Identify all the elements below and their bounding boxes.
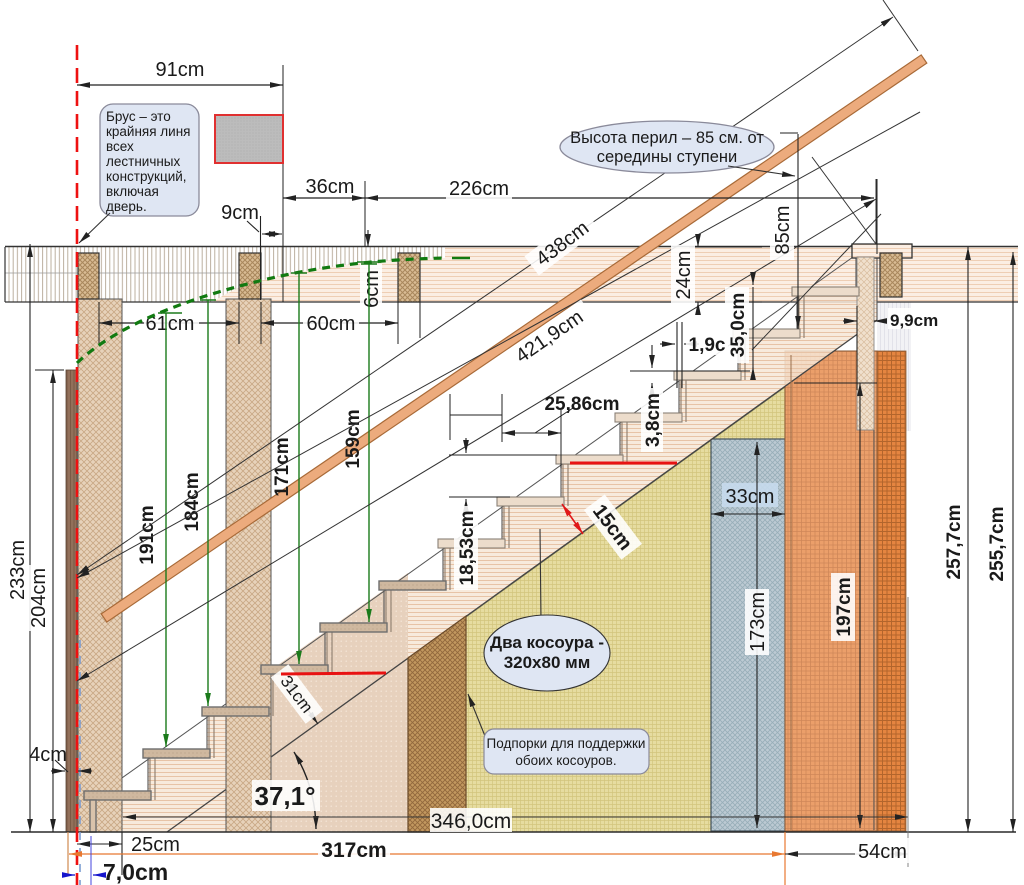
svg-text:крайняя линя: крайняя линя [106, 124, 190, 139]
svg-text:середины ступени: середины ступени [597, 148, 738, 166]
svg-text:обоих косоуров.: обоих косоуров. [515, 753, 616, 768]
svg-text:9cm: 9cm [221, 202, 259, 224]
svg-text:Подпорки для поддержки: Подпорки для поддержки [487, 736, 646, 751]
svg-text:85cm: 85cm [772, 206, 794, 255]
svg-text:33cm: 33cm [726, 486, 775, 508]
svg-text:6cm: 6cm [361, 270, 383, 308]
svg-text:24cm: 24cm [673, 251, 695, 300]
svg-text:7,0cm: 7,0cm [103, 859, 168, 885]
svg-text:346,0cm: 346,0cm [431, 810, 512, 833]
svg-text:конструкций,: конструкций, [106, 169, 187, 184]
svg-text:60cm: 60cm [307, 313, 356, 335]
svg-text:37,1°: 37,1° [254, 781, 315, 811]
svg-text:204cm: 204cm [28, 568, 50, 628]
svg-text:257,7cm: 257,7cm [944, 504, 965, 579]
svg-text:171cm: 171cm [272, 437, 293, 496]
svg-text:18,53cm: 18,53cm [457, 510, 478, 585]
svg-text:9,9cm: 9,9cm [890, 311, 938, 330]
svg-text:173cm: 173cm [747, 592, 769, 652]
svg-text:159cm: 159cm [343, 409, 364, 468]
svg-text:320x80 мм: 320x80 мм [504, 653, 591, 672]
svg-text:лестничных: лестничных [106, 154, 181, 169]
svg-text:226cm: 226cm [449, 178, 509, 200]
svg-text:35,0cm: 35,0cm [728, 293, 749, 357]
svg-text:1,9c: 1,9c [689, 335, 726, 356]
svg-text:184cm: 184cm [182, 472, 203, 531]
svg-text:197cm: 197cm [834, 577, 855, 636]
svg-text:Брус – это: Брус – это [106, 109, 171, 124]
svg-text:4cm: 4cm [29, 744, 67, 766]
svg-text:всех: всех [106, 139, 134, 154]
svg-text:54cm: 54cm [858, 841, 907, 863]
svg-text:91cm: 91cm [156, 59, 205, 81]
svg-text:25cm: 25cm [131, 834, 180, 856]
svg-text:255,7cm: 255,7cm [987, 506, 1008, 581]
svg-text:36cm: 36cm [306, 176, 355, 198]
svg-text:Высота перил – 85 см. от: Высота перил – 85 см. от [570, 129, 764, 147]
svg-text:включая: включая [106, 184, 159, 199]
svg-text:Два косоура -: Два косоура - [490, 633, 604, 652]
svg-text:233cm: 233cm [7, 540, 29, 600]
svg-text:317cm: 317cm [321, 839, 386, 862]
svg-text:дверь.: дверь. [106, 199, 147, 214]
svg-text:3,8cm: 3,8cm [643, 393, 664, 447]
svg-text:25,86cm: 25,86cm [544, 394, 619, 415]
